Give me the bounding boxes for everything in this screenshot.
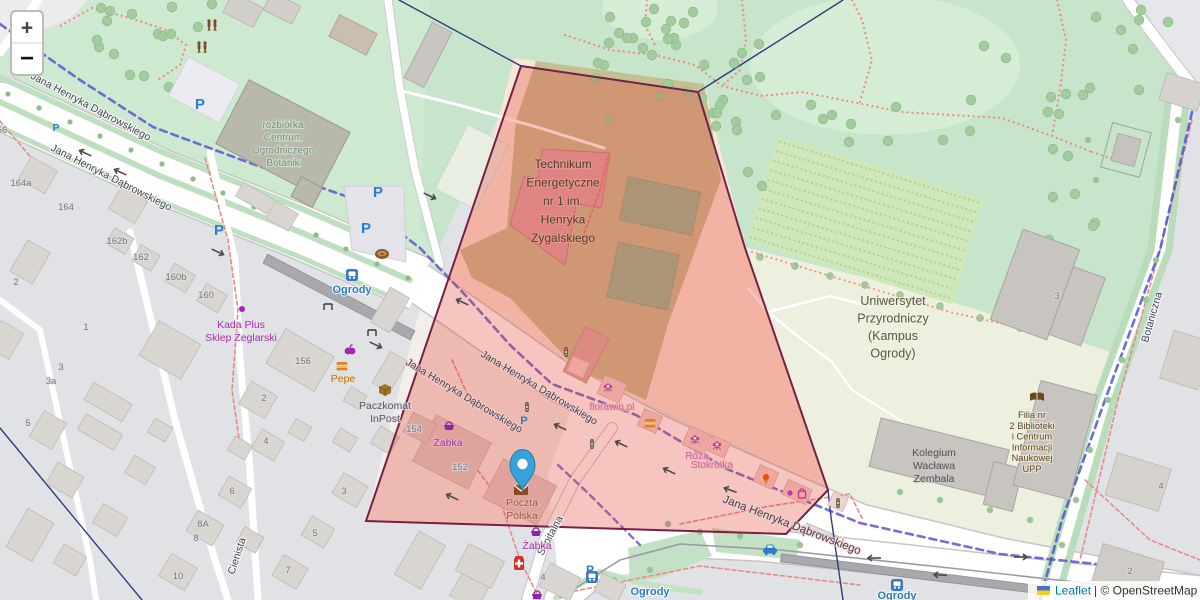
- svg-text:10: 10: [173, 571, 184, 582]
- svg-text:Kolegium: Kolegium: [912, 447, 956, 459]
- svg-text:P: P: [214, 222, 224, 239]
- svg-text:Kada Plus: Kada Plus: [217, 319, 265, 331]
- svg-text:+: +: [21, 17, 33, 40]
- svg-text:UPP: UPP: [1022, 464, 1041, 474]
- svg-text:P: P: [195, 96, 205, 113]
- svg-text:InPost: InPost: [370, 413, 400, 425]
- svg-text:4: 4: [540, 572, 545, 583]
- svg-text:152: 152: [452, 462, 468, 473]
- svg-text:Zembala: Zembala: [914, 473, 955, 485]
- svg-text:Przyrodniczy: Przyrodniczy: [857, 312, 929, 326]
- svg-text:Uniwersytet: Uniwersytet: [860, 294, 926, 308]
- svg-text:Ogrody: Ogrody: [877, 590, 917, 600]
- svg-text:162: 162: [133, 252, 149, 263]
- svg-text:rozbiórka: rozbiórka: [262, 120, 304, 131]
- svg-text:Żabka: Żabka: [522, 539, 551, 552]
- svg-text:| © OpenStreetMap: | © OpenStreetMap: [1094, 584, 1198, 598]
- svg-text:Technikum: Technikum: [534, 157, 591, 171]
- svg-text:P: P: [373, 184, 383, 201]
- svg-text:Ogrody): Ogrody): [870, 347, 915, 361]
- svg-text:8: 8: [193, 533, 198, 544]
- svg-text:Poczta: Poczta: [506, 497, 538, 509]
- svg-text:Pepe: Pepe: [331, 373, 356, 385]
- svg-text:Informacji: Informacji: [1012, 442, 1052, 452]
- svg-text:56: 56: [0, 125, 7, 136]
- svg-text:Energetyczne: Energetyczne: [526, 176, 600, 190]
- svg-text:2: 2: [261, 393, 266, 404]
- svg-text:6: 6: [229, 486, 234, 497]
- svg-text:164a: 164a: [10, 178, 32, 189]
- svg-text:Ogrody: Ogrody: [630, 586, 670, 598]
- svg-text:2 Biblioteki: 2 Biblioteki: [1010, 421, 1055, 431]
- svg-text:4: 4: [263, 436, 268, 447]
- svg-text:3: 3: [58, 362, 63, 373]
- svg-text:florawin.pl: florawin.pl: [589, 402, 634, 413]
- svg-text:Polska: Polska: [506, 510, 538, 522]
- svg-text:Paczkomat: Paczkomat: [359, 400, 411, 412]
- svg-text:4: 4: [1158, 481, 1163, 492]
- svg-text:Wacława: Wacława: [913, 460, 955, 472]
- svg-text:Leaflet: Leaflet: [1055, 584, 1092, 598]
- svg-text:nr 1 im.: nr 1 im.: [543, 194, 583, 208]
- svg-text:i Centrum: i Centrum: [1012, 432, 1053, 442]
- svg-text:2: 2: [13, 277, 18, 288]
- svg-text:164: 164: [58, 202, 74, 213]
- svg-text:Ogrodniczego: Ogrodniczego: [252, 145, 315, 156]
- svg-text:Botanik: Botanik: [266, 158, 300, 169]
- svg-text:(Kampus: (Kampus: [868, 329, 918, 343]
- svg-text:160b: 160b: [165, 272, 186, 283]
- svg-text:Zygalskiego: Zygalskiego: [531, 231, 595, 245]
- svg-text:Ogrody: Ogrody: [332, 284, 372, 296]
- svg-text:156: 156: [295, 356, 311, 367]
- svg-text:162b: 162b: [106, 236, 127, 247]
- svg-text:Naukowej: Naukowej: [1012, 453, 1053, 463]
- svg-text:P: P: [52, 122, 59, 134]
- svg-text:5: 5: [25, 418, 30, 429]
- svg-text:2: 2: [1127, 566, 1132, 577]
- svg-text:5: 5: [312, 528, 317, 539]
- svg-text:Stokrotka: Stokrotka: [691, 460, 734, 471]
- svg-text:3a: 3a: [46, 376, 57, 387]
- svg-text:3: 3: [341, 486, 346, 497]
- svg-text:160: 160: [198, 290, 214, 301]
- svg-text:−: −: [20, 45, 34, 72]
- svg-text:154: 154: [406, 424, 422, 435]
- svg-text:Sklep Żeglarski: Sklep Żeglarski: [205, 331, 277, 344]
- svg-text:Żabka: Żabka: [433, 436, 462, 449]
- svg-text:Henryka: Henryka: [541, 213, 586, 227]
- svg-text:8A: 8A: [197, 519, 209, 530]
- svg-text:3: 3: [1054, 291, 1059, 302]
- svg-text:Filia nr: Filia nr: [1018, 410, 1046, 420]
- svg-text:7: 7: [285, 565, 290, 576]
- svg-text:1: 1: [83, 322, 88, 333]
- svg-text:P: P: [361, 220, 371, 237]
- svg-text:Centrum: Centrum: [264, 133, 302, 144]
